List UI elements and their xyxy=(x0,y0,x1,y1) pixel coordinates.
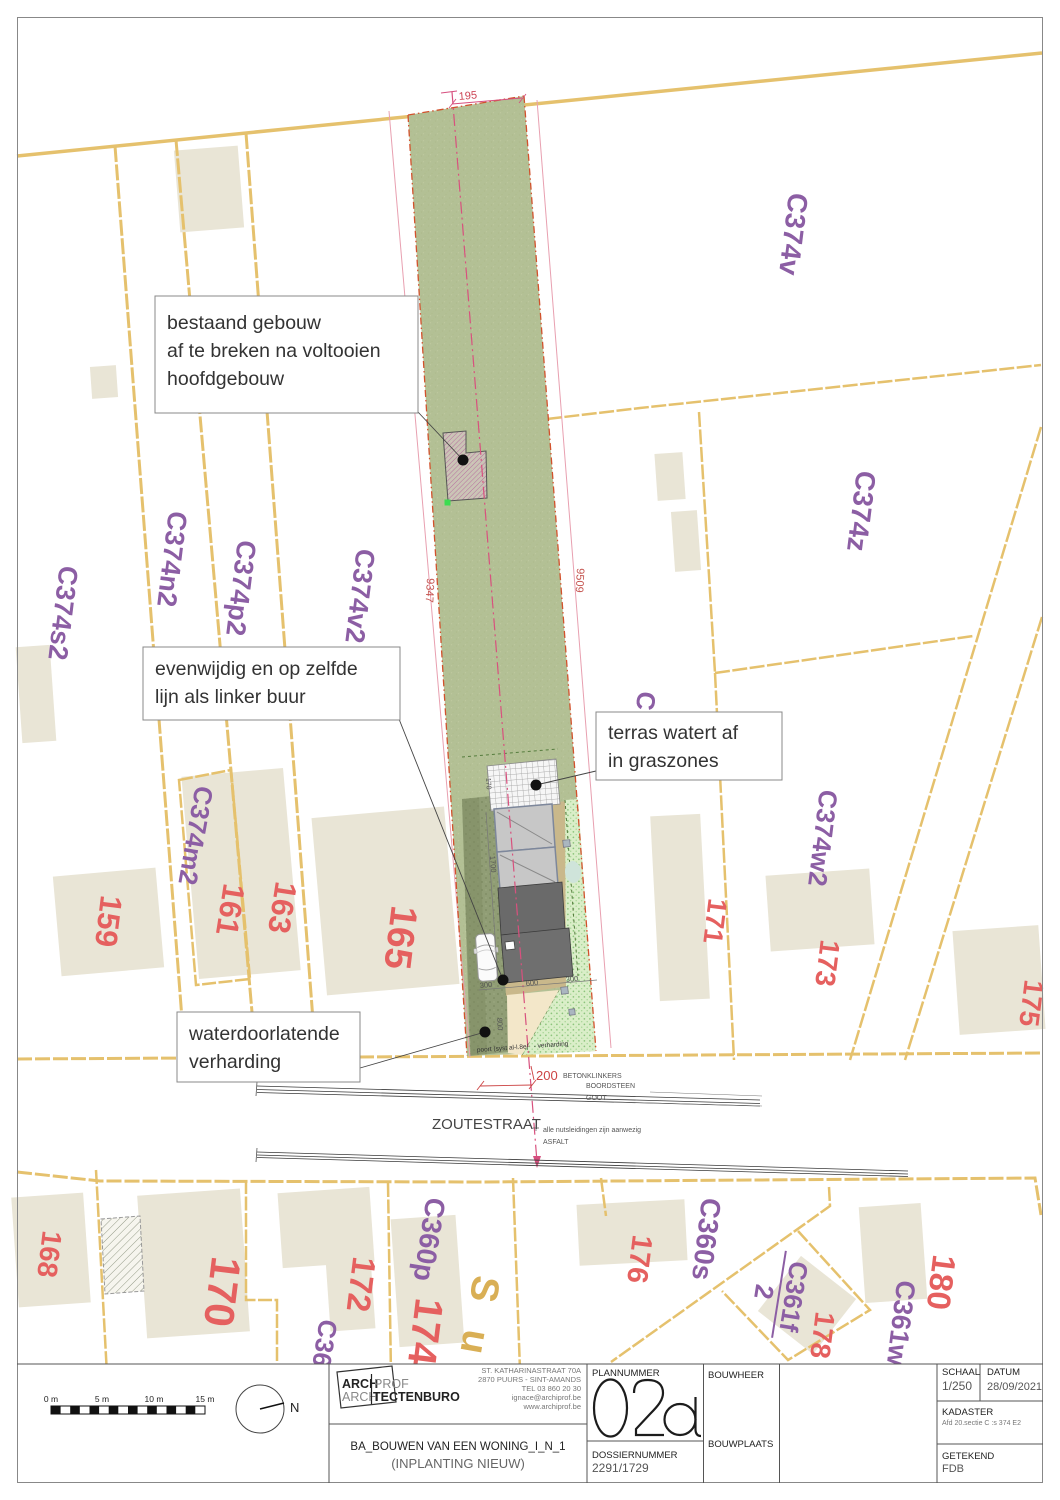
svg-text:Afd 20.sectie C :s 374 E2: Afd 20.sectie C :s 374 E2 xyxy=(942,1420,1021,1427)
svg-text:DATUM: DATUM xyxy=(987,1367,1020,1378)
svg-text:in graszones: in graszones xyxy=(608,750,719,772)
svg-text:170: 170 xyxy=(484,778,492,790)
svg-text:176: 176 xyxy=(620,1233,658,1285)
svg-text:TEL 03 860 20 30: TEL 03 860 20 30 xyxy=(522,1384,581,1393)
svg-text:171: 171 xyxy=(697,897,732,945)
svg-text:300: 300 xyxy=(479,980,492,990)
svg-text:ST. KATHARINASTRAAT 70A: ST. KATHARINASTRAAT 70A xyxy=(481,1366,581,1375)
svg-text:165: 165 xyxy=(375,903,424,971)
svg-text:600: 600 xyxy=(525,978,538,988)
svg-text:180: 180 xyxy=(920,1253,963,1312)
svg-text:9509: 9509 xyxy=(573,568,586,593)
svg-text:SCHAAL: SCHAAL xyxy=(942,1367,980,1378)
svg-text:800: 800 xyxy=(495,1018,505,1031)
svg-text:PROF: PROF xyxy=(374,1377,409,1391)
svg-text:hoofdgebouw: hoofdgebouw xyxy=(167,368,285,390)
svg-text:C: C xyxy=(630,690,662,713)
svg-text:KADASTER: KADASTER xyxy=(942,1407,993,1418)
svg-text:DOSSIERNUMMER: DOSSIERNUMMER xyxy=(592,1450,678,1461)
svg-text:172: 172 xyxy=(340,1255,383,1314)
svg-text:170: 170 xyxy=(195,1254,250,1329)
svg-text:10 m: 10 m xyxy=(145,1394,164,1404)
svg-text:195: 195 xyxy=(458,89,477,103)
svg-text:GOOT: GOOT xyxy=(586,1095,607,1102)
svg-text:15 m: 15 m xyxy=(196,1394,215,1404)
svg-text:BA_BOUWEN VAN EEN WONING_I_N_1: BA_BOUWEN VAN EEN WONING_I_N_1 xyxy=(350,1441,565,1453)
svg-text:178: 178 xyxy=(804,1310,840,1360)
svg-text:(INPLANTING NIEUW): (INPLANTING NIEUW) xyxy=(391,1456,525,1471)
svg-text:ZOUTESTRAAT: ZOUTESTRAAT xyxy=(432,1116,541,1133)
svg-text:2870 PUURS - SINT-AMANDS: 2870 PUURS - SINT-AMANDS xyxy=(478,1375,581,1384)
svg-text:ARCH: ARCH xyxy=(342,1377,378,1391)
svg-text:www.archiprof.be: www.archiprof.be xyxy=(522,1402,581,1411)
svg-text:200: 200 xyxy=(536,1068,558,1083)
svg-text:BETONKLINKERS: BETONKLINKERS xyxy=(563,1073,622,1080)
svg-text:lijn als linker buur: lijn als linker buur xyxy=(155,686,306,708)
svg-text:2291/1729: 2291/1729 xyxy=(592,1461,649,1475)
svg-text:terras watert af: terras watert af xyxy=(608,722,739,744)
svg-text:N: N xyxy=(290,1400,299,1415)
svg-text:9347: 9347 xyxy=(423,578,436,603)
svg-text:af te breken na voltooien: af te breken na voltooien xyxy=(167,340,381,362)
svg-text:300: 300 xyxy=(565,974,578,984)
svg-text:waterdoorlatende: waterdoorlatende xyxy=(188,1023,340,1045)
svg-text:bestaand gebouw: bestaand gebouw xyxy=(167,312,322,334)
svg-text:alle nutsleidingen zijn aanwez: alle nutsleidingen zijn aanwezig xyxy=(543,1127,641,1134)
svg-text:ignace@archiprof.be: ignace@archiprof.be xyxy=(512,1393,581,1402)
svg-text:BOUWHEER: BOUWHEER xyxy=(708,1370,764,1381)
svg-text:168: 168 xyxy=(31,1229,67,1279)
svg-text:1/250: 1/250 xyxy=(942,1379,972,1393)
svg-text:evenwijdig en op zelfde: evenwijdig en op zelfde xyxy=(155,658,358,680)
svg-text:GETEKEND: GETEKEND xyxy=(942,1451,994,1462)
svg-text:BOORDSTEEN: BOORDSTEEN xyxy=(586,1083,635,1090)
svg-text:5 m: 5 m xyxy=(95,1394,109,1404)
svg-text:TECTENBURO: TECTENBURO xyxy=(373,1390,460,1404)
svg-text:159: 159 xyxy=(88,893,129,949)
svg-text:verharding: verharding xyxy=(189,1051,281,1073)
svg-text:173: 173 xyxy=(809,938,845,988)
svg-text:FDB: FDB xyxy=(942,1463,964,1475)
svg-text:PLANNUMMER: PLANNUMMER xyxy=(592,1368,660,1379)
svg-text:ASFALT: ASFALT xyxy=(543,1139,569,1146)
svg-text:1700: 1700 xyxy=(488,856,498,873)
svg-text:BOUWPLAATS: BOUWPLAATS xyxy=(708,1439,773,1450)
svg-text:174: 174 xyxy=(399,1296,451,1368)
svg-text:175: 175 xyxy=(1013,978,1049,1028)
svg-text:28/09/2021: 28/09/2021 xyxy=(987,1381,1042,1393)
svg-text:0 m: 0 m xyxy=(44,1394,58,1404)
